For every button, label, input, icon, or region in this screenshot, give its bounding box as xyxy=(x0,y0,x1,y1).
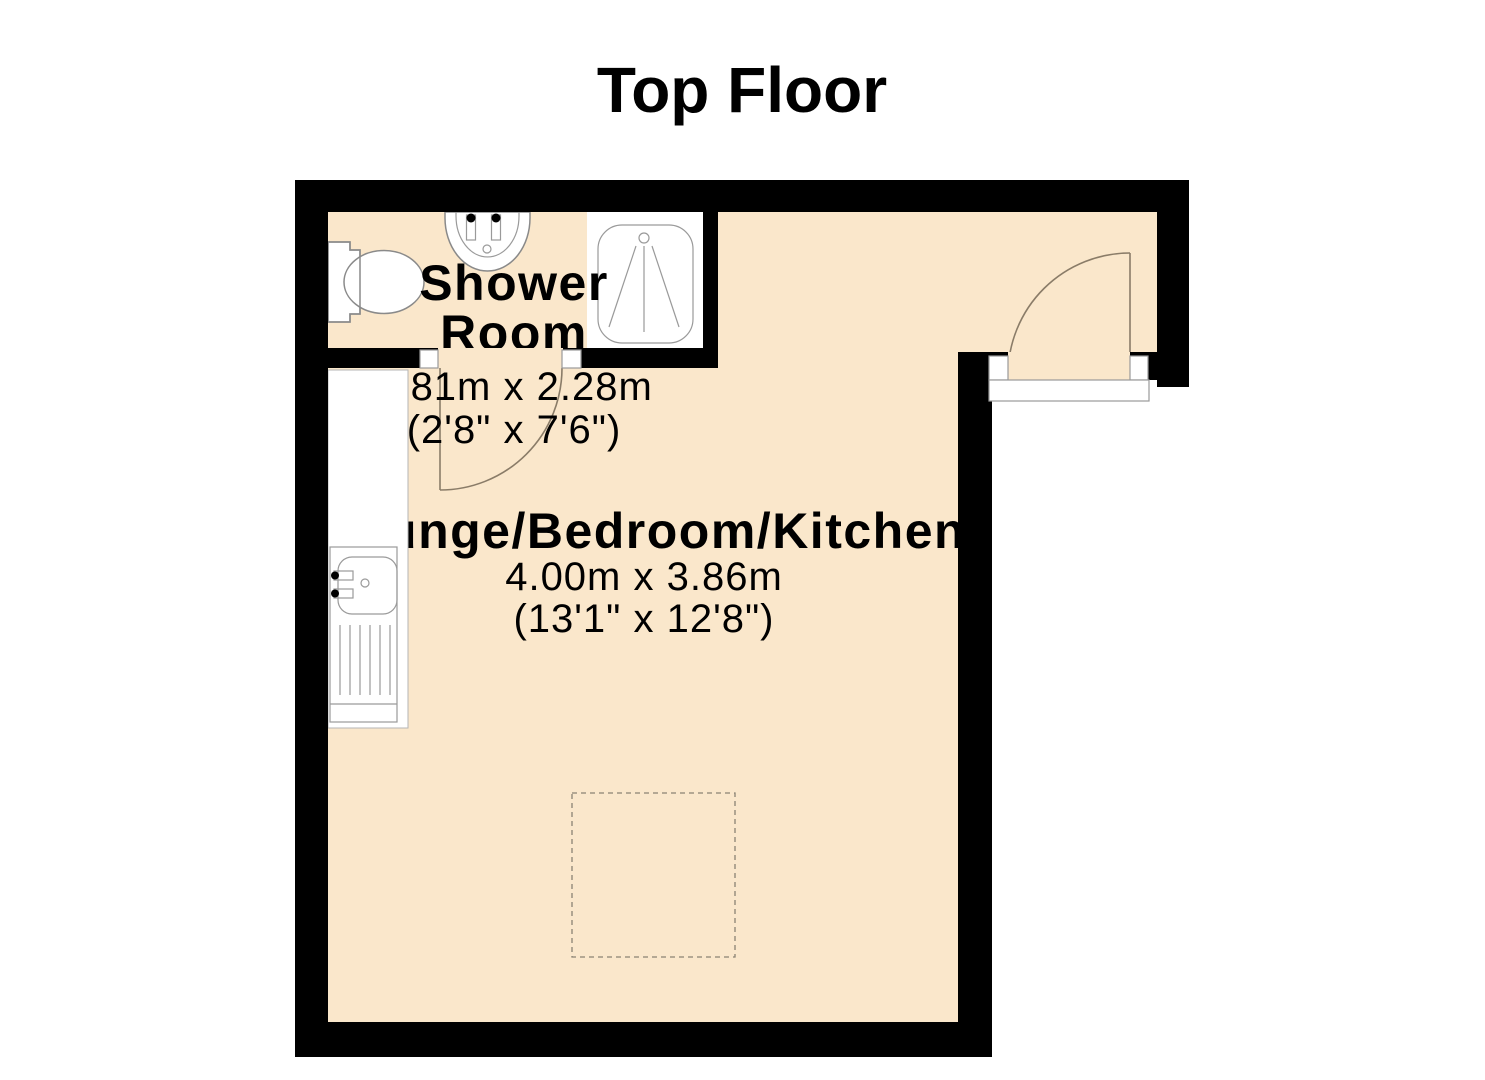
page-title: Top Floor xyxy=(597,54,887,126)
door-jamb xyxy=(420,350,438,368)
door-jamb xyxy=(989,356,1008,380)
toilet-bowl xyxy=(344,251,424,314)
lounge-label: Lounge/Bedroom/Kitchen xyxy=(322,503,966,559)
wall-right-lower xyxy=(958,352,992,1057)
shower-room-size-metric: 0.81m x 2.28m xyxy=(375,365,653,409)
wall-left xyxy=(295,180,328,1057)
kitchen-sink-drainer-icon xyxy=(328,370,408,728)
wall-bottom xyxy=(295,1022,992,1057)
shower-door-opening xyxy=(438,348,563,368)
shower-room-size-imperial: (2'8" x 7'6") xyxy=(407,408,622,452)
lounge-size-imperial: (13'1" x 12'8") xyxy=(513,597,774,641)
shower-room-label-line1: Shower xyxy=(419,255,609,311)
basin-tap-dot-left xyxy=(467,214,476,223)
lounge-size-metric: 4.00m x 3.86m xyxy=(505,555,783,599)
basin-tap-dot-right xyxy=(492,214,501,223)
entry-threshold xyxy=(989,380,1149,401)
sink-tap-dot-bottom xyxy=(331,590,339,598)
entry-door-opening xyxy=(1008,352,1130,380)
sink-tap-dot-top xyxy=(331,572,339,580)
wall-top xyxy=(295,180,1189,212)
door-jamb xyxy=(1130,356,1148,380)
floor-plan: Top Floor Shower Room 0.81m x 2.28m (2'8… xyxy=(0,0,1485,1080)
door-jamb xyxy=(562,350,581,368)
floor-plan-page: Top Floor Shower Room 0.81m x 2.28m (2'8… xyxy=(0,0,1485,1080)
wall-shower-right xyxy=(703,212,718,368)
